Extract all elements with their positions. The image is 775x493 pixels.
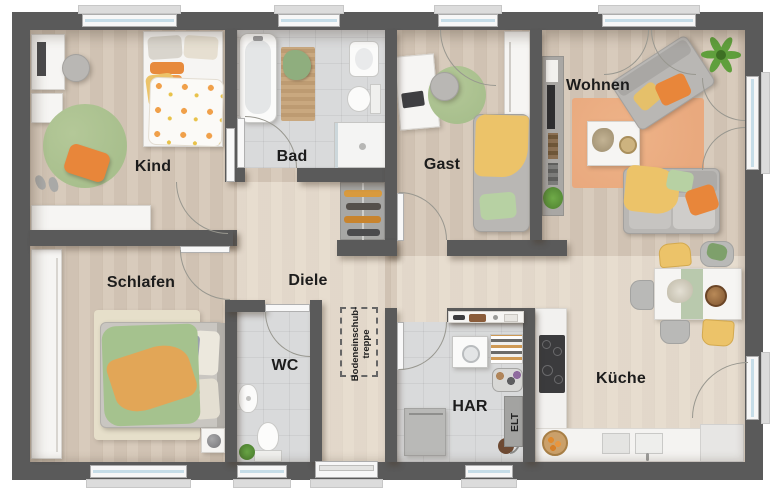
entrance-door-panel (319, 465, 374, 471)
door-sill (761, 352, 770, 424)
kueche-sink-1 (602, 433, 630, 454)
gast-office-chair (430, 72, 459, 101)
wall-wc-top (225, 300, 265, 312)
bath-towel (283, 50, 311, 80)
coffee-table-tray (619, 136, 637, 154)
room-label-schlafen: Schlafen (107, 274, 175, 292)
floor-plan: ELT (0, 0, 775, 493)
room-label-bad: Bad (277, 148, 308, 166)
corridor-console (448, 311, 524, 323)
wc-basin-drain (246, 396, 251, 401)
room-label-wohnen: Wohnen (566, 77, 630, 95)
kind-office-chair (62, 54, 90, 82)
window-sill (761, 72, 770, 174)
shelf-plant (543, 187, 563, 209)
shoe-rack (340, 182, 385, 240)
har-washer (452, 336, 488, 368)
door-kueche-glass (751, 359, 754, 417)
room-label-har: HAR (452, 398, 487, 416)
schlafen-wardrobe-handle (56, 258, 58, 452)
burner (542, 365, 553, 376)
kueche-faucet-icon (646, 453, 649, 461)
dining-table (654, 268, 742, 320)
wall-niche-bottom (337, 240, 397, 256)
shoes-row-1 (344, 190, 382, 197)
har-freezer-handle (409, 413, 443, 415)
shelf-books-1 (548, 133, 558, 159)
room-label-gast: Gast (424, 156, 460, 174)
gast-daybed-pillow (479, 191, 517, 220)
fruit-bowl (542, 430, 568, 456)
wall-bad-bottom (297, 168, 385, 182)
dining-chair-gray-top (700, 241, 734, 267)
schlafen-bed (100, 322, 224, 428)
window-schlafen-glass (93, 470, 184, 473)
console-tray (469, 314, 486, 322)
wall-gast-wohnen (530, 30, 542, 240)
bad-toilet-tank (370, 84, 381, 114)
wall-har-kueche (523, 308, 535, 462)
window-gast-glass (441, 19, 495, 22)
kind-monitor (37, 42, 46, 76)
window-sill (274, 5, 344, 14)
nightstand-lamp (207, 434, 221, 448)
room-label-wc: WC (271, 357, 298, 375)
wall-kind-schlafen (30, 230, 233, 246)
schlafen-nightstand (201, 428, 225, 453)
burner (553, 347, 562, 356)
shower (334, 122, 386, 168)
bathtub-basin (245, 40, 271, 114)
schlafen-wardrobe (31, 249, 62, 459)
har-drying-rack (490, 334, 523, 364)
console-keys (493, 315, 498, 320)
kueche-counter-west (535, 308, 567, 430)
door-leaf-wc (265, 304, 310, 312)
palm-center (716, 50, 726, 60)
wall-schlafen-wc (225, 300, 237, 462)
loft-hatch-label-line1: Bodeneinschub- (350, 307, 361, 381)
kind-bed (143, 31, 223, 147)
wohnen-palm-plant (696, 28, 746, 82)
window-sill (78, 5, 181, 14)
wall-bad-bottom-stub (237, 168, 245, 182)
room-label-diele: Diele (288, 272, 327, 290)
elt-cabinet: ELT (504, 396, 523, 447)
shelf-books-2 (548, 163, 558, 185)
room-label-kueche: Küche (596, 370, 646, 388)
wohnen-sofa-bottom (623, 168, 720, 234)
window-kind-glass (85, 19, 174, 22)
har-washer-door (462, 345, 480, 363)
dining-chair-yellow-bottom (701, 319, 735, 347)
console-box (504, 314, 518, 322)
gast-daybed (473, 114, 530, 232)
kueche-sink-2 (635, 433, 663, 454)
shower-drain-icon (359, 143, 366, 150)
window-wohnen-glass (605, 19, 693, 22)
window-sill (461, 479, 517, 488)
bad-toilet (347, 84, 379, 112)
har-laundry-basket (492, 368, 523, 392)
bathtub-faucet-icon (253, 36, 263, 41)
shelf-panel (546, 60, 558, 82)
gast-wardrobe-handle (509, 42, 511, 112)
table-bowl (705, 285, 727, 307)
shelf-tv (547, 85, 555, 129)
wall-wc-east (310, 300, 322, 462)
window-wc-glass (240, 470, 284, 473)
dining-chair-gray-left (630, 280, 654, 310)
dining-chair-gray-bottom (660, 320, 690, 344)
bad-sink (349, 41, 379, 77)
entrance-step (310, 479, 383, 488)
kind-bed-pillow-2 (183, 35, 219, 60)
shoes-row-4 (347, 229, 380, 236)
wall-har-west (385, 308, 397, 462)
window-har-glass (468, 470, 510, 473)
window-sill (86, 479, 191, 488)
shoes-row-3 (344, 216, 381, 223)
wc-toilet (254, 422, 280, 462)
gast-wardrobe (504, 31, 530, 123)
window-wohnen-right-glass (751, 79, 754, 167)
window-sill (434, 5, 502, 14)
kind-bed-duvet (148, 77, 224, 148)
burner (554, 375, 563, 384)
wall-gast-bottom (447, 240, 567, 256)
door-leaf-bad (237, 118, 245, 168)
gast-laptop (401, 91, 425, 109)
wc-basin (238, 384, 258, 413)
shower-glass (335, 123, 338, 169)
wc-toilet-bowl (257, 422, 279, 451)
gast-daybed-throw (474, 114, 529, 178)
cooktop (539, 335, 565, 393)
coffee-table (587, 121, 640, 166)
coffee-table-plant (592, 128, 614, 152)
wc-toilet-tank (254, 450, 282, 462)
door-leaf-kind (226, 128, 235, 182)
kind-bed-pillow-1 (147, 35, 183, 60)
chair-cloth-green (706, 242, 729, 262)
shoes-row-2 (346, 203, 381, 210)
har-freezer (404, 408, 446, 456)
loft-hatch-label-line2: treppe (361, 329, 372, 358)
kueche-counter-corner (700, 424, 744, 462)
loft-hatch-label: Bodeneinschub- treppe (342, 309, 380, 379)
wall-gast-west (385, 30, 397, 256)
window-sill (598, 5, 700, 14)
bad-sink-basin (355, 48, 373, 70)
burner (542, 340, 551, 349)
bad-toilet-bowl (347, 86, 371, 112)
room-label-kind: Kind (135, 158, 171, 176)
window-bad-glass (281, 19, 337, 22)
loft-hatch-stairs: Bodeneinschub- treppe (340, 307, 378, 377)
dining-chair-yellow-top (658, 242, 692, 269)
window-sill (233, 479, 291, 488)
wohnen-shelf (542, 56, 564, 216)
console-glasses (453, 315, 465, 320)
wc-plant (239, 444, 255, 460)
elt-label: ELT (505, 397, 524, 448)
bathtub (239, 33, 277, 123)
